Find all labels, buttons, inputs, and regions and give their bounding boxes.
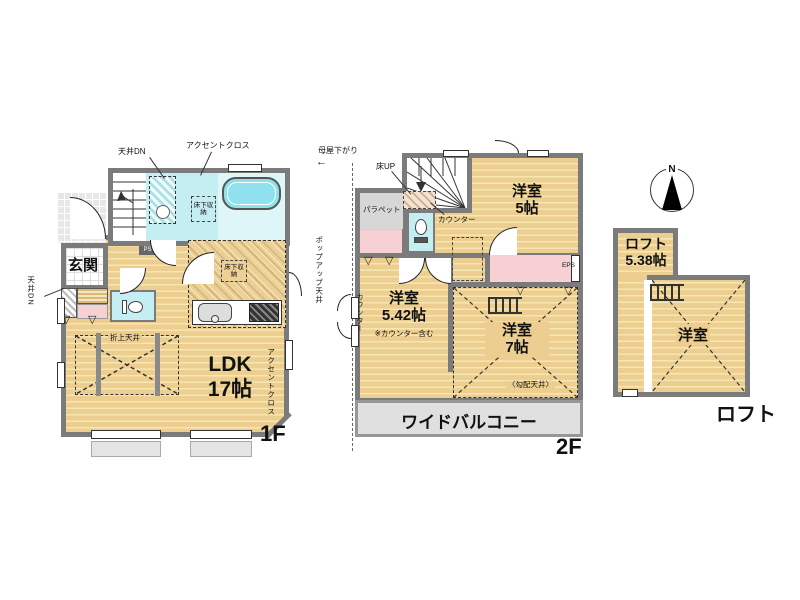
f1-window-sill — [190, 441, 252, 457]
f2-counter-stairs-label: カウンター — [438, 216, 476, 225]
kitchen-sink-icon — [198, 303, 232, 322]
f2-window — [527, 150, 549, 157]
f2-eps-label: EPS — [562, 262, 575, 269]
f1-pillar — [155, 333, 160, 396]
door-swing-marker: ▽ — [564, 286, 572, 297]
washing-machine-icon — [156, 205, 170, 219]
f2-floor-up-label: 床UP — [376, 162, 395, 171]
f2-wall — [467, 158, 472, 213]
f2-popup-ceiling-label: ポップアップ天井 — [314, 236, 323, 302]
f2-hatch-arc-top — [495, 140, 519, 153]
f1-window — [57, 298, 65, 324]
f1-stairs-icon — [113, 173, 146, 241]
door-swing-marker: ▽ — [516, 286, 524, 297]
f2-balcony-label: ワイドバルコニー — [375, 408, 563, 433]
f1-door-arc-kitchen-right — [289, 272, 302, 296]
toilet-icon — [414, 219, 428, 245]
f1-toilet-room — [110, 290, 156, 322]
f2-floor-label: 2F — [556, 434, 582, 460]
loft-name: ロフト — [616, 236, 676, 252]
f1-entrance-label: 玄関 — [68, 257, 98, 274]
f1-ceiling-dn-top-label: 天井DN — [118, 147, 146, 156]
f1-top-window — [228, 164, 262, 172]
loft-size: 5.38帖 — [616, 252, 676, 268]
f1-window-sill — [91, 441, 161, 457]
f2-door-arc-left — [337, 322, 351, 339]
floorplan-canvas: 床下収納 床下収納 玄関 天井DN ▽ ▽ PS 折上天井 — [0, 0, 800, 600]
f2-door-arc-left — [337, 294, 351, 311]
loft-window — [622, 389, 638, 397]
f1-underfloor-storage-washroom: 床下収納 — [191, 196, 216, 222]
f1-floor-label: 1F — [260, 421, 286, 447]
f1-underfloor-storage-kitchen: 床下収納 — [221, 260, 247, 282]
f2-room5-size: 5帖 — [497, 200, 557, 217]
f1-pillar — [96, 333, 101, 396]
door-swing-marker: ▽ — [385, 256, 393, 267]
f2-parapet-label: パラペット — [363, 206, 401, 215]
f1-window — [190, 430, 252, 439]
bathtub-icon — [222, 177, 281, 210]
f1-coffered-ceiling-label: 折上天井 — [108, 334, 142, 343]
f2-window — [351, 297, 359, 319]
f1-window — [57, 362, 65, 388]
kitchen-stove-icon — [249, 303, 279, 322]
f2-counter-note: ※カウンター含む — [364, 330, 444, 339]
f2-sloped-ceiling-label: 〈勾配天井〉 — [506, 381, 555, 390]
f1-shoe-cabinet — [77, 288, 108, 304]
f2-closet-band — [490, 255, 573, 282]
f2-room5-name: 洋室 — [497, 183, 557, 200]
f2-room7-label: 洋室 7帖 — [485, 322, 549, 357]
loft-room-label: 洋室 — [676, 324, 710, 345]
f1-ceiling-dn-box — [149, 176, 176, 224]
f1-window — [285, 340, 293, 370]
f2-closet-left — [360, 230, 402, 253]
f2-window — [351, 325, 359, 347]
loft-name-label: ロフト 5.38帖 — [616, 236, 676, 268]
loft-ladder-icon — [488, 297, 522, 314]
f2-toilet-room — [407, 211, 435, 253]
f2-room7-name: 洋室 — [485, 322, 549, 339]
compass-needle-icon — [662, 175, 682, 210]
toilet-icon — [122, 292, 144, 322]
f1-accent-cloth-top-label: アクセントクロス — [186, 141, 250, 150]
f2-room542-label: 洋室 5.42帖 — [368, 290, 440, 325]
f1-window — [91, 430, 161, 439]
f2-room5-label: 洋室 5帖 — [497, 183, 557, 218]
f2-hall-dashed-box — [452, 237, 483, 281]
f2-window — [443, 150, 469, 157]
door-swing-marker: ▽ — [88, 315, 96, 326]
loft-ladder-icon — [650, 284, 684, 301]
f2-floor-up-hatch — [403, 191, 436, 209]
f1-coffered-ceiling-box — [75, 335, 179, 395]
f2-room542-name: 洋室 — [368, 290, 440, 307]
f2-left-arrow-icon: ← — [316, 156, 327, 169]
door-swing-marker: ▽ — [364, 256, 372, 267]
compass-north-label: N — [666, 164, 678, 175]
loft-floor-label: ロフト — [716, 398, 776, 427]
f1-ceiling-dn-left-label: 天井DN — [26, 276, 35, 322]
f2-main-roof-down-label: 母屋下がり — [318, 146, 358, 155]
f2-room7-size: 7帖 — [485, 339, 549, 356]
f2-room542-size: 5.42帖 — [368, 307, 440, 324]
